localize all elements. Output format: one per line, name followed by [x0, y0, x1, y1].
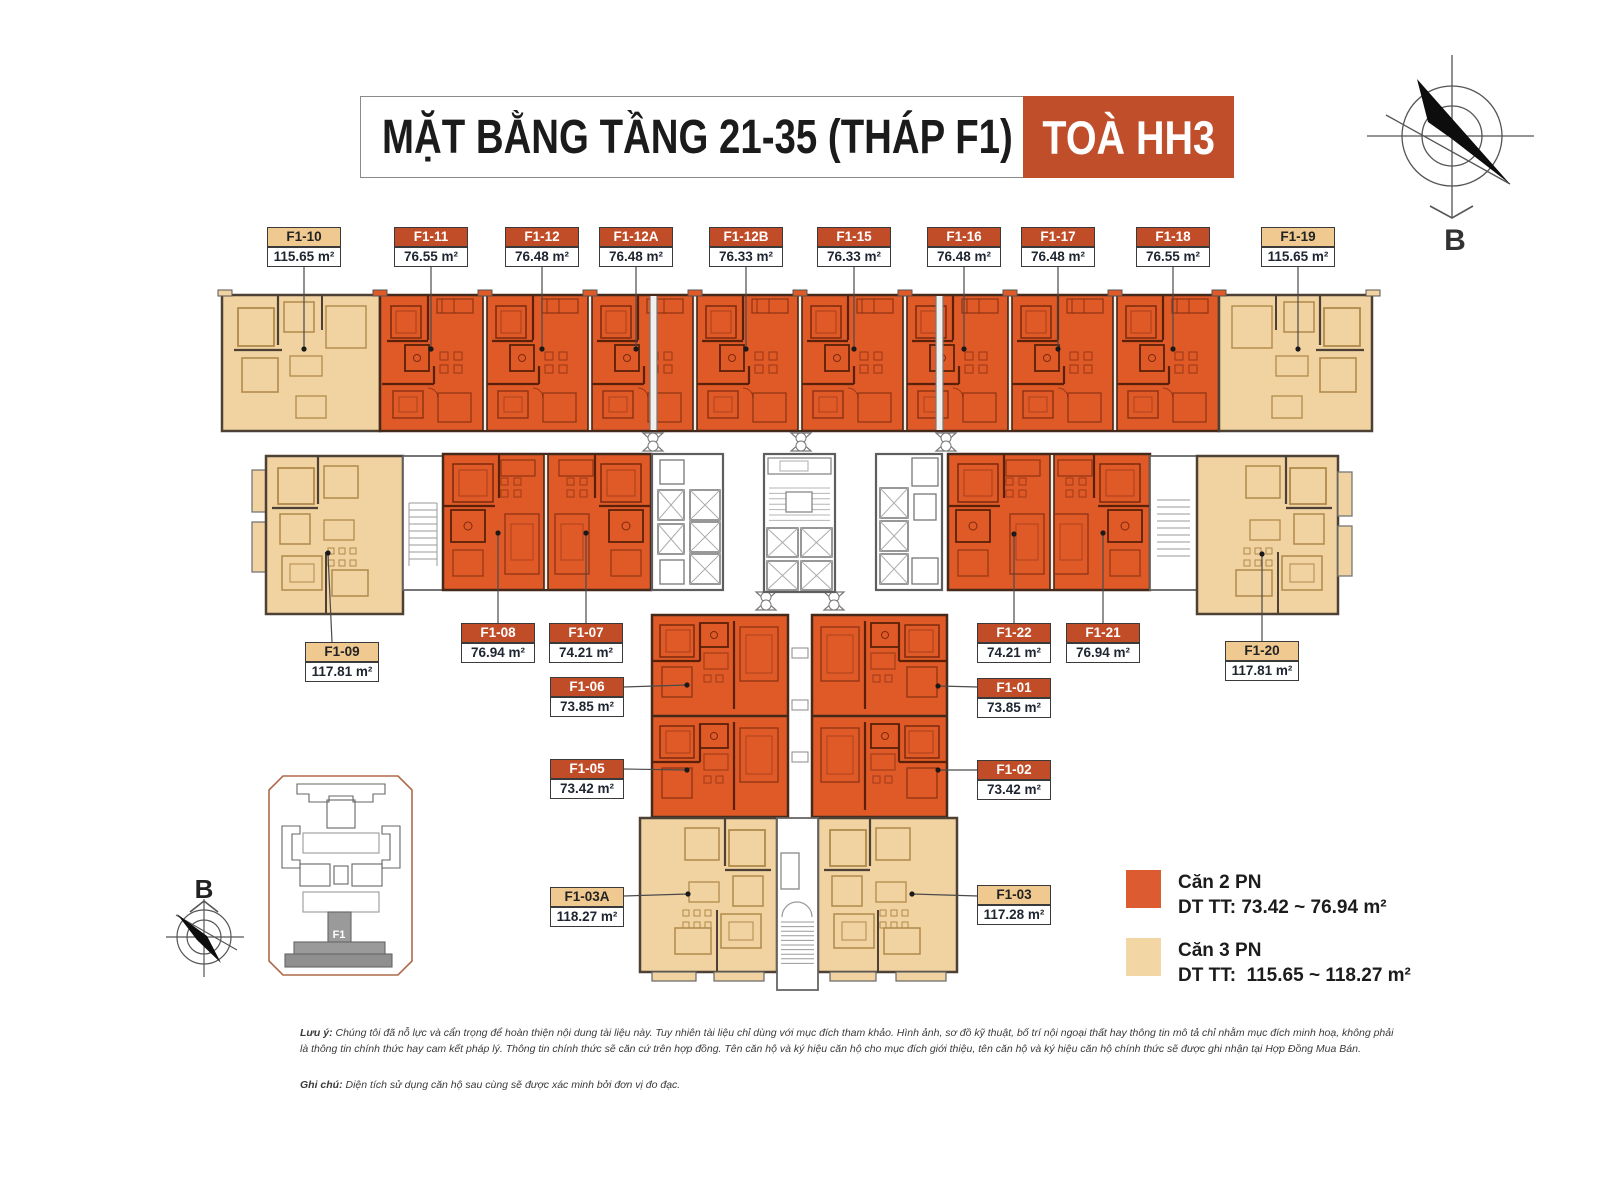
svg-text:F1: F1 — [333, 929, 346, 941]
svg-text:B: B — [195, 874, 214, 904]
